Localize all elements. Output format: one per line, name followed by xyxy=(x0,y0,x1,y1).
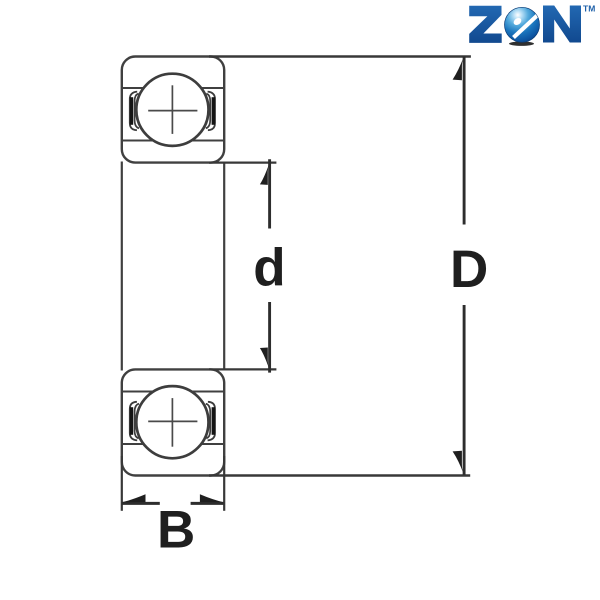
svg-text:d: d xyxy=(253,238,285,297)
svg-text:TM: TM xyxy=(583,4,595,14)
svg-text:B: B xyxy=(157,501,195,560)
svg-text:D: D xyxy=(450,240,488,299)
